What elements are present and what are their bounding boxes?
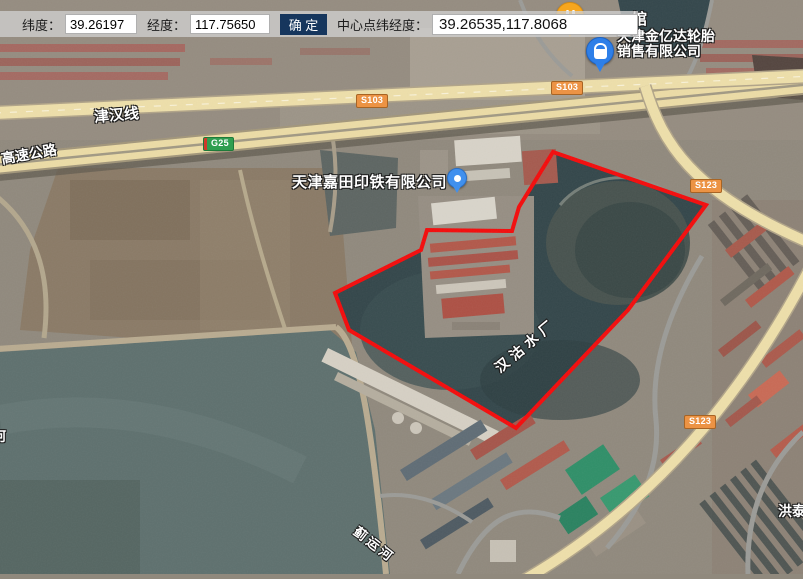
shop-pin-icon[interactable]	[586, 37, 614, 72]
longitude-label: 经度：	[147, 15, 186, 34]
satellite-map[interactable]	[0, 0, 803, 574]
jiatian-location-pin[interactable]	[447, 168, 467, 193]
confirm-button[interactable]: 确 定	[280, 14, 327, 35]
longitude-input[interactable]	[190, 14, 270, 34]
route-badge-g25: G25	[203, 137, 234, 151]
latitude-label: 纬度：	[22, 15, 61, 34]
route-badge-s103-a: S103	[356, 94, 388, 108]
route-badge-s123-b: S123	[684, 415, 716, 429]
grain-overlay	[0, 0, 803, 574]
coordinate-toolbar: 纬度： 经度： 确 定 中心点纬经度：	[0, 11, 638, 37]
center-coords-box[interactable]	[432, 14, 638, 35]
center-coords-label: 中心点纬经度：	[337, 15, 428, 34]
shopping-bag-icon	[586, 37, 614, 65]
map-app: { "toolbar": { "lat_label": "纬度：", "lat_…	[0, 0, 803, 574]
route-badge-s103-b: S103	[551, 81, 583, 95]
latitude-input[interactable]	[65, 14, 137, 34]
route-badge-s123-a: S123	[690, 179, 722, 193]
